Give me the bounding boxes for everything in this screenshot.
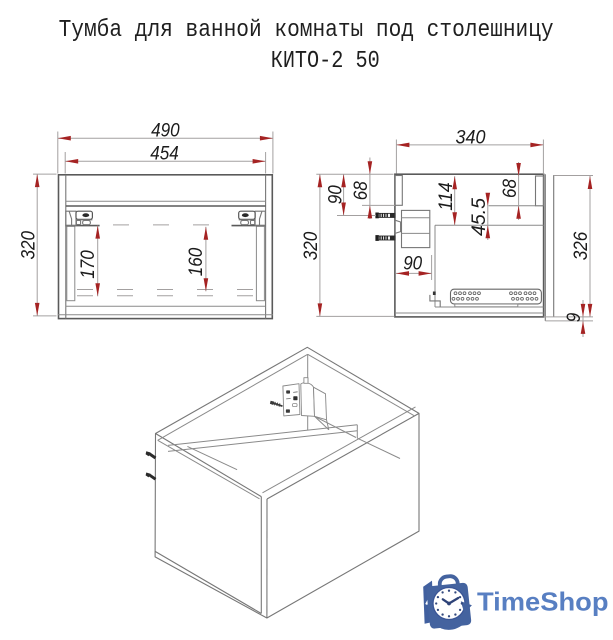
svg-text:68: 68 (500, 179, 521, 198)
svg-text:68: 68 (351, 181, 372, 200)
svg-text:160: 160 (186, 247, 207, 276)
svg-text:TimeShop: TimeShop (477, 587, 609, 617)
svg-text:90: 90 (403, 254, 422, 275)
svg-text:340: 340 (456, 128, 486, 149)
svg-text:90: 90 (325, 185, 346, 204)
svg-text:326: 326 (571, 231, 592, 260)
svg-text:170: 170 (78, 250, 99, 279)
svg-text:Тумба для ванной комнаты под с: Тумба для ванной комнаты под столешницу (59, 16, 554, 44)
svg-text:114: 114 (436, 182, 457, 211)
svg-text:320: 320 (301, 231, 322, 260)
svg-text:320: 320 (19, 231, 40, 260)
svg-text:454: 454 (150, 143, 179, 164)
svg-text:490: 490 (151, 121, 180, 142)
svg-text:45.5: 45.5 (469, 198, 490, 236)
svg-text:КИТО-2 50: КИТО-2 50 (271, 48, 380, 75)
svg-text:9: 9 (564, 312, 585, 322)
